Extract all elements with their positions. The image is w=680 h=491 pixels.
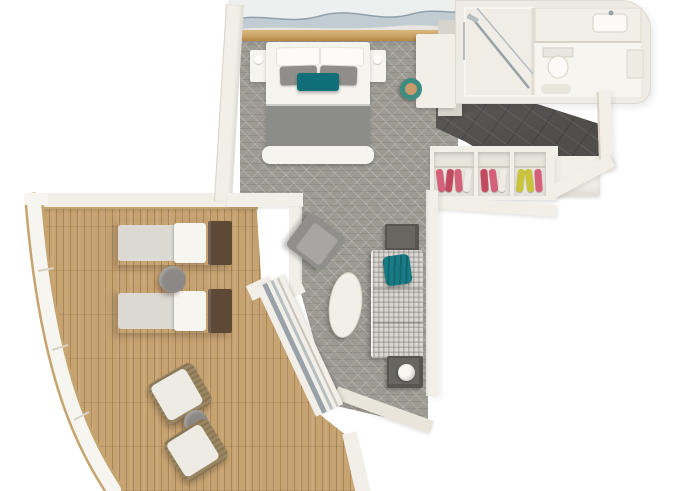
clothes-rod <box>478 166 510 168</box>
garment-red <box>445 169 454 193</box>
sofa-seam <box>373 322 423 324</box>
gray-blanket <box>266 104 370 152</box>
clothes-rod <box>514 166 546 168</box>
garment-white <box>498 169 507 193</box>
lounger-backrest <box>174 291 206 331</box>
wardrobe-cubby-3 <box>514 152 546 196</box>
garment-pink <box>454 169 463 192</box>
railing-end-cap <box>24 193 48 205</box>
wardrobe-cubby-1 <box>434 152 474 196</box>
garment-pink <box>436 169 446 193</box>
sofa-seam <box>373 288 423 290</box>
lounger-wood-frame <box>208 221 232 265</box>
lounger-cushion <box>118 225 182 261</box>
living-room-top-wall <box>227 193 303 207</box>
teal-accent-pillow <box>297 73 339 91</box>
sink <box>593 14 627 32</box>
lounger-wood-frame <box>208 289 232 333</box>
nightstand-right <box>369 50 386 82</box>
garment-yellow <box>525 169 535 193</box>
hanging-clothes <box>437 169 471 192</box>
side-table-upper <box>385 224 419 252</box>
clothes-rod <box>434 166 474 168</box>
table-lamp <box>398 364 415 381</box>
wardrobe <box>430 146 558 200</box>
hanging-clothes <box>517 169 542 192</box>
nightstand-left <box>250 50 267 82</box>
curved-railing <box>16 190 132 491</box>
living-room-right-wall <box>426 190 438 396</box>
bath-shelf <box>627 50 643 78</box>
suite-floorplan <box>0 0 680 491</box>
bath-mat <box>541 84 571 94</box>
bathroom-fixtures <box>455 0 651 104</box>
garment-pink <box>534 169 543 192</box>
garment-red <box>480 169 489 192</box>
faucet <box>609 11 614 16</box>
vanity-stool <box>400 78 422 100</box>
vanity-desk <box>416 34 456 108</box>
garment-yellow <box>516 169 525 193</box>
double-bed <box>250 42 386 166</box>
garment-white <box>463 169 472 193</box>
lounger-backrest <box>174 223 206 263</box>
headboard-artwork <box>228 0 472 34</box>
lounger-cushion <box>118 293 182 329</box>
garment-pink <box>489 169 499 193</box>
white-pillow <box>276 47 320 67</box>
sun-lounger-1 <box>118 221 232 265</box>
white-pillow <box>320 47 364 67</box>
foot-bench <box>262 146 374 164</box>
round-deck-table-upper <box>159 266 186 293</box>
wardrobe-cubby-2 <box>478 152 510 196</box>
teal-throw <box>382 253 413 286</box>
sun-lounger-2 <box>118 289 232 333</box>
toilet <box>548 56 568 78</box>
hanging-clothes <box>481 169 506 192</box>
